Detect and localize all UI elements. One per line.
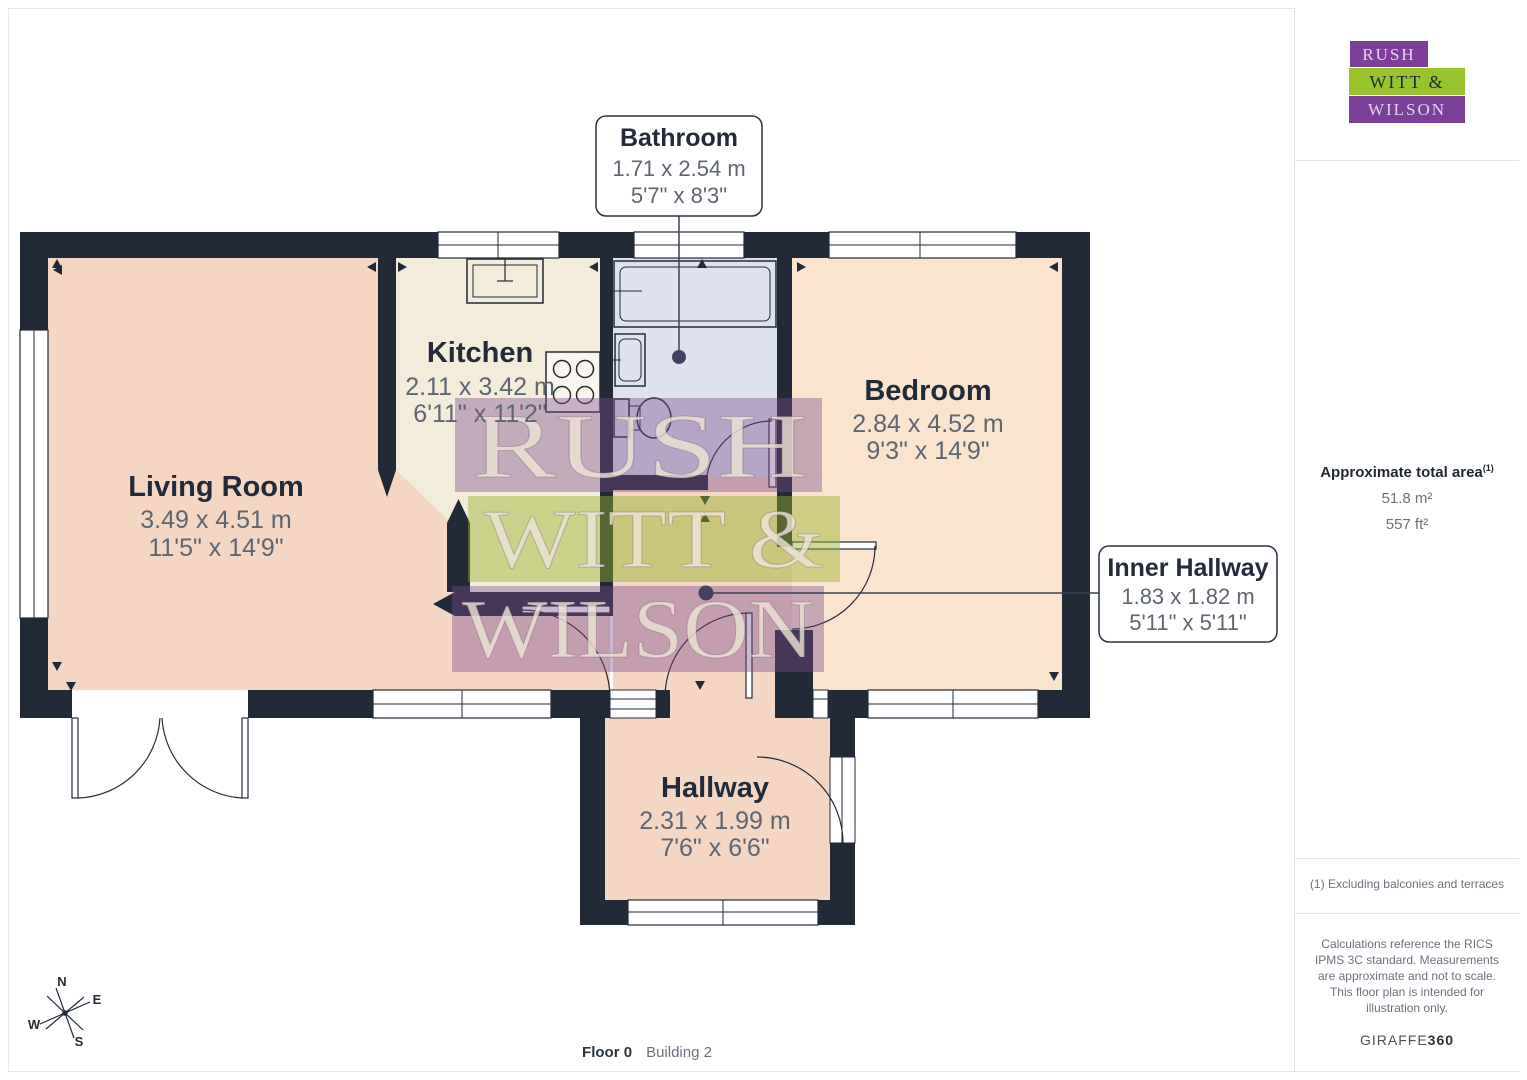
sidebar-divider-1	[1295, 160, 1519, 161]
window-top-3	[829, 232, 1016, 258]
total-area-title: Approximate total area(1)	[1295, 463, 1519, 481]
living-room-imperial: 11'5" x 14'9"	[148, 534, 283, 562]
bathroom-metric: 1.71 x 2.54 m	[612, 156, 745, 181]
exclusion-note: (1) Excluding balconies and terraces	[1307, 877, 1507, 891]
compass-n: N	[57, 974, 66, 989]
window-top-1	[438, 232, 559, 258]
bathroom-leader-dot	[672, 350, 686, 364]
watermark-line-3: WILSON	[462, 583, 814, 676]
total-area-metric: 51.8 m²	[1295, 490, 1519, 507]
bathroom-imperial: 5'7" x 8'3"	[631, 183, 727, 208]
total-area-block: Approximate total area(1) 51.8 m² 557 ft…	[1295, 463, 1519, 533]
bedroom-metric: 2.84 x 4.52 m	[852, 410, 1003, 438]
bedroom-floor	[792, 258, 1062, 690]
doorframe-hallway-top	[813, 690, 828, 718]
brand-name: GIRAFFE	[1360, 1032, 1428, 1048]
watermark-line-2: WITT &	[484, 493, 824, 586]
compass-w: W	[28, 1017, 41, 1032]
building-label: Building 2	[646, 1044, 712, 1061]
doorframe-inner-hall	[610, 690, 656, 718]
bedroom-label: Bedroom 2.84 x 4.52 m 9'3" x 14'9"	[852, 375, 1003, 465]
floor-plan-svg: RUSH WITT & WILSON Living Room 3.49 x 4.…	[0, 0, 1294, 1080]
inner-hallway-imperial: 5'11" x 5'11"	[1129, 610, 1246, 635]
window-hallway-bottom	[628, 900, 818, 925]
floor-label: Floor 0	[582, 1044, 632, 1061]
living-room-label: Living Room 3.49 x 4.51 m 11'5" x 14'9"	[128, 471, 304, 562]
window-bedroom-bottom	[868, 690, 1038, 718]
floor-plan-area: RUSH WITT & WILSON Living Room 3.49 x 4.…	[0, 0, 1294, 1080]
giraffe360-brand: GIRAFFE360	[1295, 1032, 1519, 1048]
agency-logo: RUSH WITT & WILSON	[1295, 41, 1519, 123]
kitchen-metric: 2.11 x 3.42 m	[405, 373, 555, 401]
kitchen-name: Kitchen	[427, 337, 533, 369]
living-room-metric: 3.49 x 4.51 m	[140, 506, 291, 534]
inner-hallway-name: Inner Hallway	[1107, 554, 1268, 582]
kitchen-label: Kitchen 2.11 x 3.42 m 6'11" x 11'2"	[405, 337, 555, 428]
hallway-imperial: 7'6" x 6'6"	[660, 834, 769, 862]
logo-line-wilson: WILSON	[1349, 96, 1465, 123]
hallway-name: Hallway	[661, 772, 769, 804]
bedroom-name: Bedroom	[864, 375, 991, 407]
watermark: RUSH WITT & WILSON	[452, 395, 840, 676]
compass-rose: N E W S	[28, 974, 102, 1049]
living-room-name: Living Room	[128, 471, 304, 503]
sidebar-divider-3	[1295, 913, 1519, 914]
logo-line-witt: WITT &	[1349, 68, 1465, 95]
floor-caption: Floor 0 Building 2	[0, 1044, 1294, 1061]
logo-line-rush: RUSH	[1350, 41, 1428, 67]
inner-hallway-leader-dot	[699, 586, 714, 601]
window-living-bottom	[373, 690, 551, 718]
french-doors	[72, 718, 248, 798]
kitchen-imperial: 6'11" x 11'2"	[413, 400, 546, 428]
hallway-metric: 2.31 x 1.99 m	[639, 807, 790, 835]
total-area-imperial: 557 ft²	[1295, 516, 1519, 533]
brand-suffix: 360	[1428, 1032, 1454, 1048]
total-area-superscript: (1)	[1483, 463, 1494, 473]
bathroom-name: Bathroom	[620, 124, 738, 152]
bedroom-imperial: 9'3" x 14'9"	[866, 437, 989, 465]
inner-hallway-metric: 1.83 x 1.82 m	[1121, 584, 1254, 609]
window-top-2	[634, 232, 744, 258]
window-left	[20, 330, 48, 618]
floorplan-page: RUSH WITT & WILSON Living Room 3.49 x 4.…	[0, 0, 1527, 1080]
total-area-title-text: Approximate total area	[1320, 464, 1483, 481]
sidebar: RUSH WITT & WILSON Approximate total are…	[1294, 8, 1519, 1071]
sidebar-divider-2	[1295, 858, 1519, 859]
junction-floor	[668, 690, 778, 718]
compass-e: E	[93, 992, 102, 1007]
hallway-label: Hallway 2.31 x 1.99 m 7'6" x 6'6"	[639, 772, 790, 862]
disclaimer-note: Calculations reference the RICS IPMS 3C …	[1312, 936, 1502, 1016]
